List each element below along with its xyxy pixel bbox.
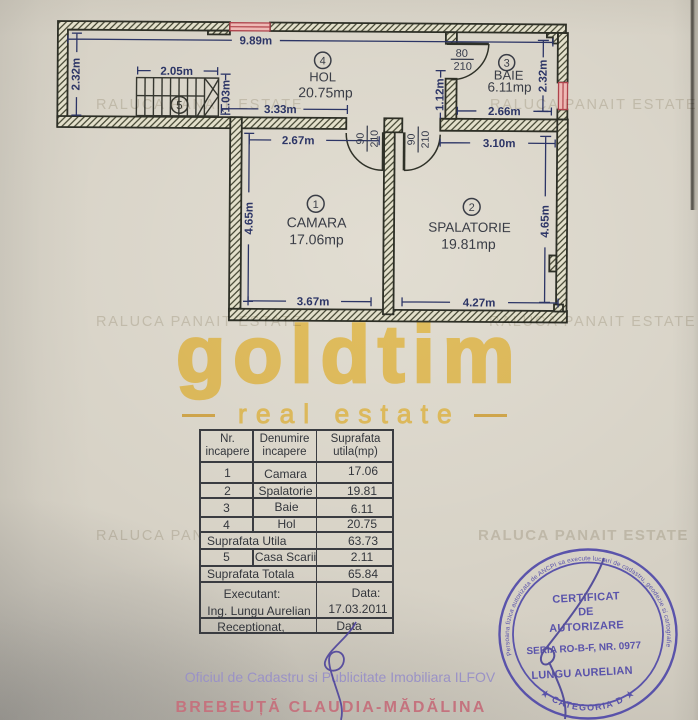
- svg-text:80: 80: [456, 48, 468, 60]
- svg-text:2.05m: 2.05m: [160, 66, 193, 78]
- svg-text:90: 90: [355, 133, 367, 145]
- svg-text:90: 90: [406, 133, 418, 145]
- svg-text:4.27m: 4.27m: [463, 297, 496, 309]
- svg-text:19.81mp: 19.81mp: [441, 236, 496, 252]
- svg-text:20.75mp: 20.75mp: [298, 84, 353, 100]
- svg-text:210: 210: [453, 61, 471, 73]
- svg-text:3.10m: 3.10m: [483, 138, 516, 150]
- svg-text:2.67m: 2.67m: [282, 135, 315, 147]
- svg-text:SPALATORIE: SPALATORIE: [428, 220, 511, 236]
- svg-text:AUTORIZARE: AUTORIZARE: [549, 619, 624, 635]
- svg-text:4.65m: 4.65m: [539, 205, 551, 238]
- svg-text:HOL: HOL: [309, 69, 336, 84]
- svg-text:2.32m: 2.32m: [71, 58, 83, 91]
- svg-text:3.67m: 3.67m: [297, 296, 330, 308]
- svg-text:1.12m: 1.12m: [434, 78, 446, 111]
- svg-text:DE: DE: [578, 606, 594, 619]
- svg-text:210: 210: [420, 131, 432, 149]
- svg-text:4.65m: 4.65m: [244, 202, 256, 235]
- svg-text:2: 2: [469, 202, 475, 214]
- svg-text:6.11mp: 6.11mp: [487, 80, 531, 95]
- svg-text:210: 210: [369, 130, 381, 148]
- svg-text:17.06mp: 17.06mp: [289, 231, 344, 247]
- svg-text:4: 4: [320, 55, 326, 67]
- svg-text:★ CATEGORIA D ★: ★ CATEGORIA D ★: [539, 687, 637, 712]
- svg-text:2.32m: 2.32m: [538, 60, 550, 93]
- svg-text:1: 1: [313, 199, 319, 211]
- svg-text:LUNGU AURELIAN: LUNGU AURELIAN: [531, 665, 633, 682]
- svg-text:CAMARA: CAMARA: [287, 214, 348, 230]
- svg-text:9.89m: 9.89m: [240, 35, 273, 47]
